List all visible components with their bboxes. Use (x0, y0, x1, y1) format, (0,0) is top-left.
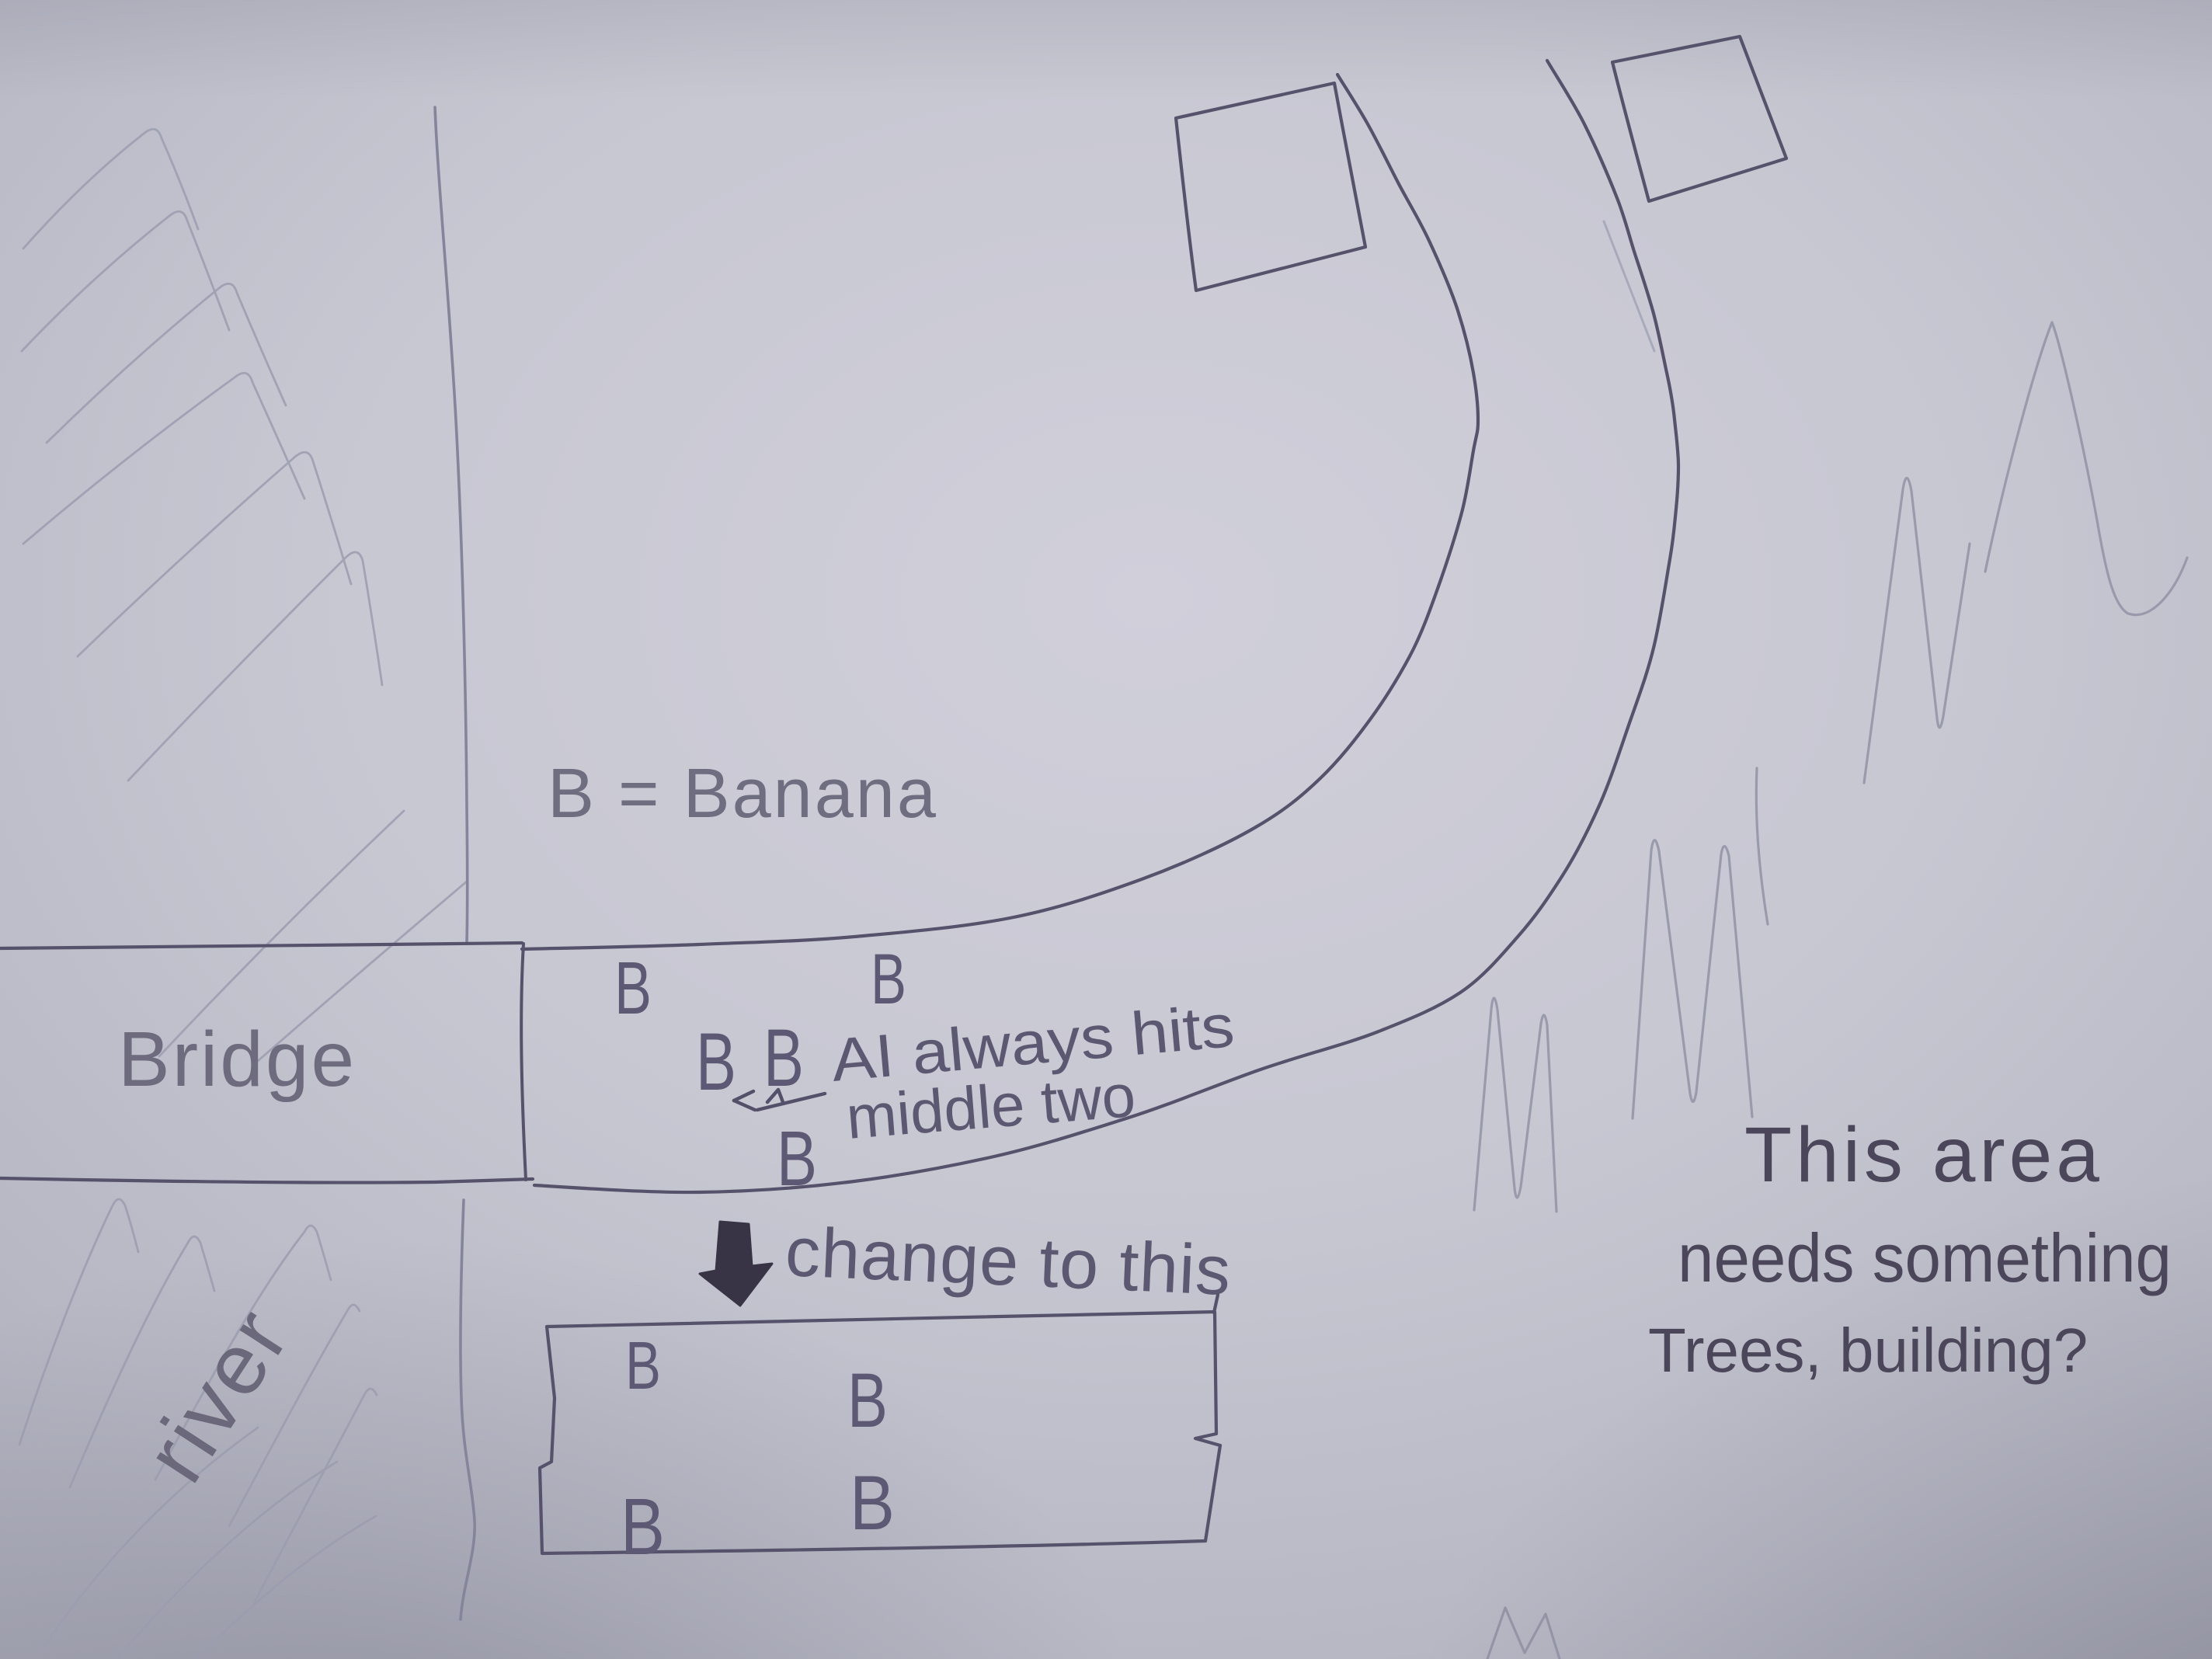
svg-text:B: B (847, 1357, 888, 1443)
svg-text:change to this: change to this (784, 1213, 1233, 1310)
svg-text:B: B (614, 947, 652, 1030)
svg-text:B: B (777, 1115, 817, 1202)
svg-text:Trees, building?: Trees, building? (1648, 1316, 2088, 1385)
svg-text:B: B (625, 1328, 661, 1403)
svg-text:B = Banana: B = Banana (548, 755, 938, 833)
svg-text:B: B (871, 940, 906, 1019)
svg-text:This area: This area (1744, 1111, 2103, 1198)
svg-text:B: B (621, 1482, 665, 1571)
svg-text:B: B (696, 1017, 736, 1108)
svg-text:river: river (126, 1291, 308, 1498)
svg-text:needs something: needs something (1678, 1219, 2172, 1296)
svg-text:B: B (763, 1013, 804, 1104)
svg-text:Bridge: Bridge (118, 1016, 356, 1103)
svg-text:B: B (850, 1459, 895, 1546)
